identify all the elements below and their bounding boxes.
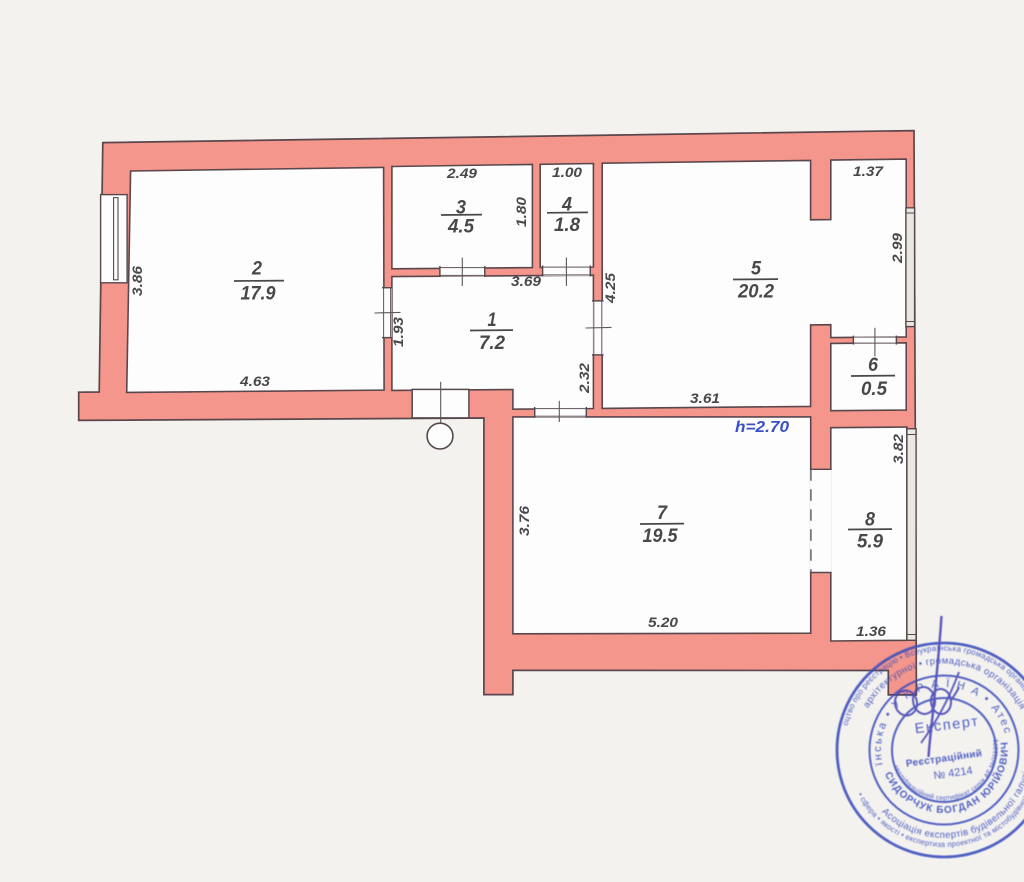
svg-text:3.69: 3.69	[511, 273, 541, 289]
svg-text:2.32: 2.32	[576, 363, 592, 394]
svg-text:20.2: 20.2	[737, 282, 774, 303]
svg-text:5.9: 5.9	[857, 532, 883, 553]
svg-text:17.9: 17.9	[241, 284, 276, 305]
svg-text:4.63: 4.63	[239, 373, 270, 389]
svg-text:4.5: 4.5	[447, 217, 474, 238]
svg-text:3.86: 3.86	[129, 266, 145, 296]
svg-text:1.36: 1.36	[856, 623, 886, 639]
svg-text:2.49: 2.49	[446, 165, 477, 181]
svg-text:7.2: 7.2	[479, 333, 505, 354]
svg-text:0.5: 0.5	[861, 379, 887, 400]
svg-text:2: 2	[251, 259, 262, 280]
svg-text:1: 1	[488, 310, 497, 331]
svg-text:1.00: 1.00	[552, 164, 582, 180]
svg-text:6: 6	[868, 355, 878, 376]
svg-text:3.76: 3.76	[516, 506, 532, 536]
svg-text:1.93: 1.93	[390, 317, 406, 347]
svg-text:1.37: 1.37	[853, 163, 884, 179]
svg-text:3.61: 3.61	[690, 390, 720, 406]
svg-text:2.99: 2.99	[889, 233, 905, 264]
svg-text:3.82: 3.82	[890, 434, 906, 464]
svg-text:8: 8	[865, 510, 875, 531]
svg-text:5.20: 5.20	[648, 614, 678, 630]
svg-text:19.5: 19.5	[643, 526, 678, 547]
svg-text:4.25: 4.25	[602, 273, 618, 304]
svg-text:1.8: 1.8	[554, 215, 580, 236]
svg-text:1.80: 1.80	[513, 197, 529, 227]
svg-text:5: 5	[751, 259, 761, 280]
svg-text:7: 7	[657, 503, 668, 524]
svg-text:h=2.70: h=2.70	[735, 419, 789, 436]
